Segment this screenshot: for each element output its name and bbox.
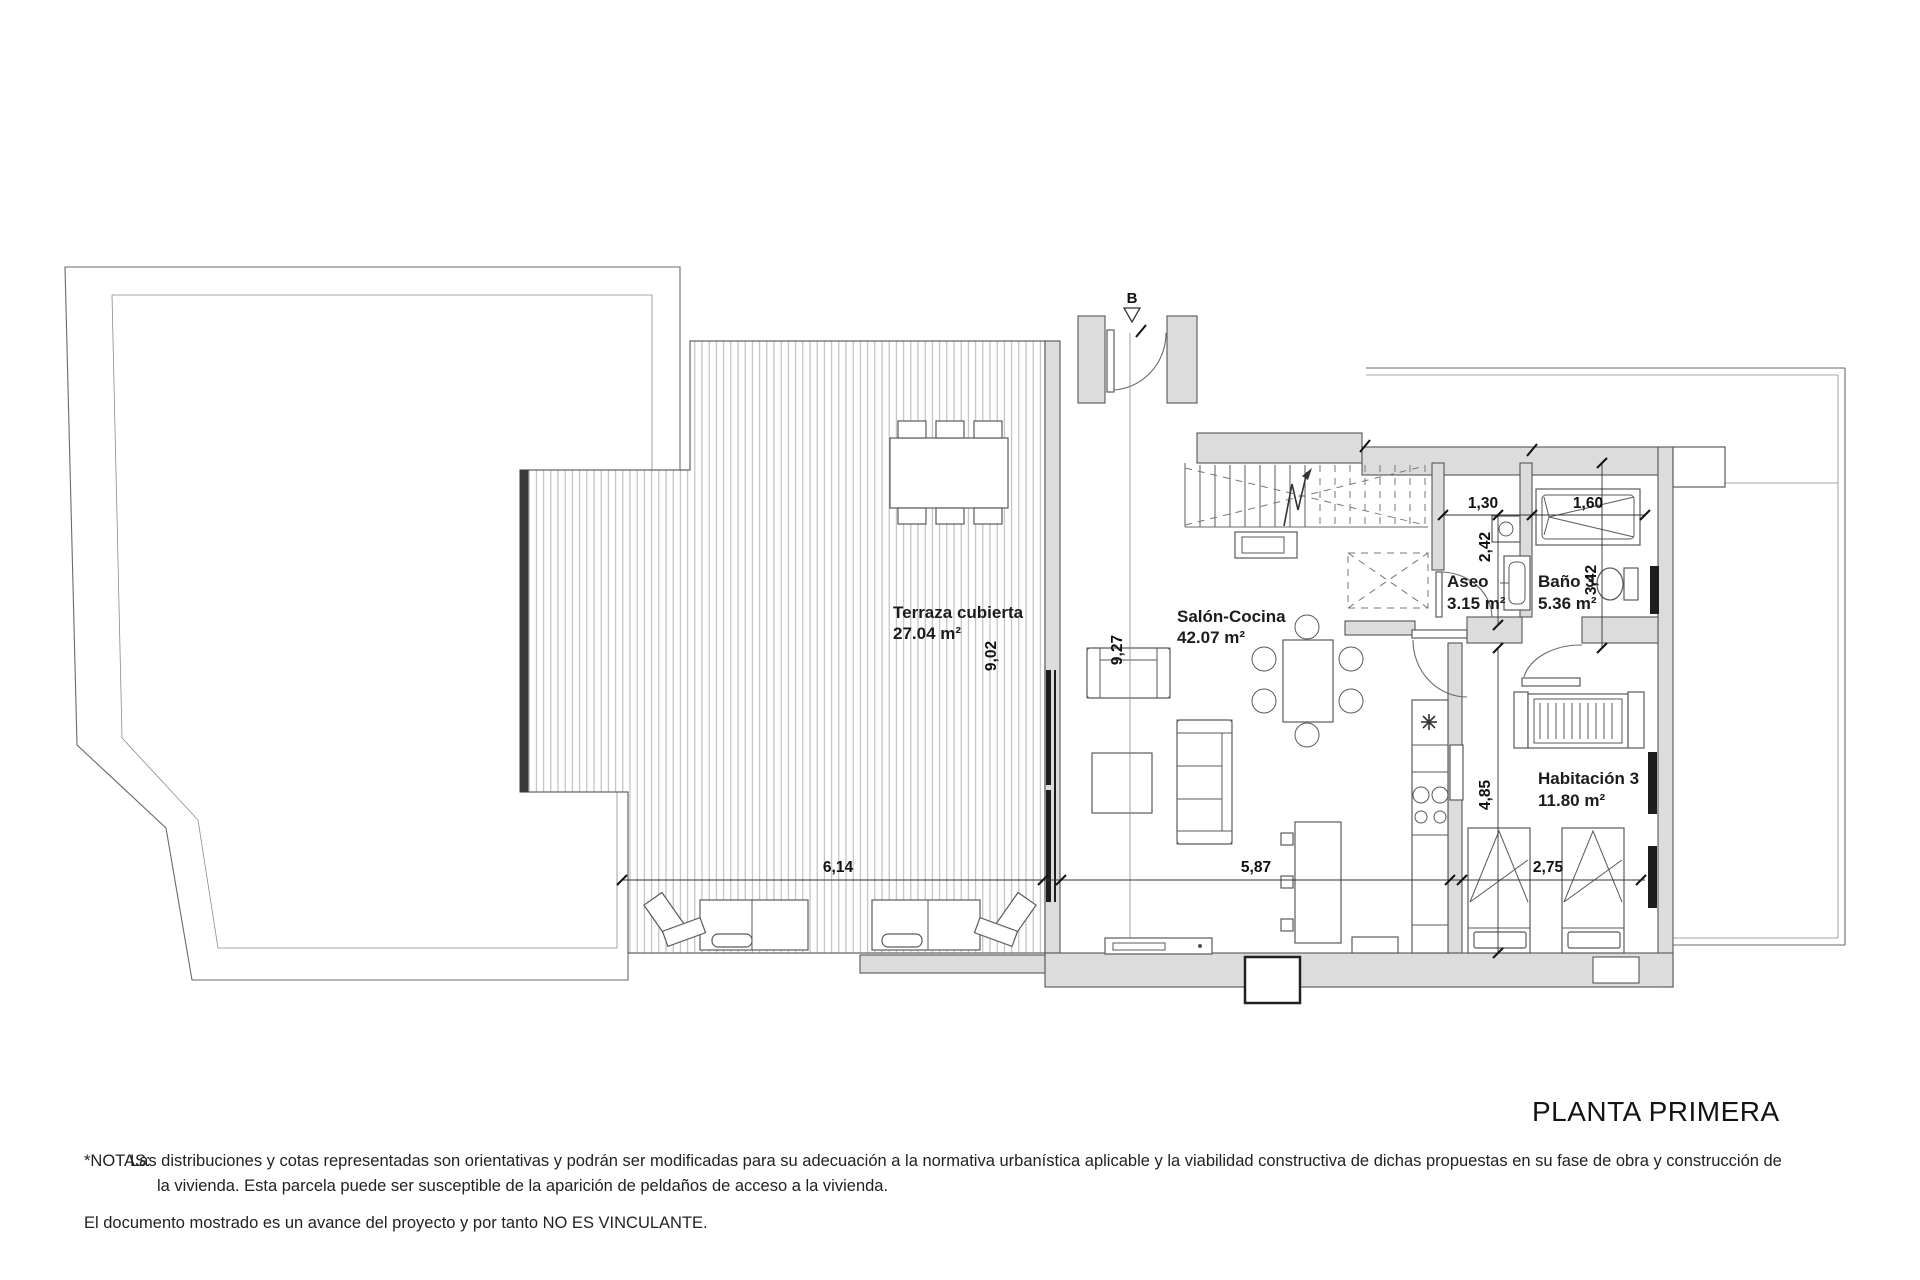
room-aseo-area: 3.15 m² bbox=[1447, 594, 1506, 613]
room-aseo-name: Aseo bbox=[1447, 572, 1489, 591]
floorplan-page: B 6,14 5,87 2,75 1,30 bbox=[0, 0, 1920, 1280]
wardrobe bbox=[1514, 692, 1644, 748]
sun-lounger-right bbox=[872, 892, 1036, 950]
dim-habitacion-height: 4,85 bbox=[1477, 780, 1494, 811]
notes-line2: la vivienda. Esta parcela puede ser susc… bbox=[157, 1177, 888, 1196]
room-habitacion-area: 11.80 m² bbox=[1538, 791, 1605, 810]
loveseat bbox=[1087, 648, 1170, 698]
room-terraza-name: Terraza cubierta bbox=[893, 603, 1024, 622]
terrace-area bbox=[520, 341, 1045, 973]
section-marker-label: B bbox=[1127, 290, 1138, 307]
room-salon-name: Salón-Cocina bbox=[1177, 607, 1286, 626]
service-box bbox=[1245, 957, 1300, 1003]
terrace-table bbox=[890, 421, 1008, 524]
terrace-bottom-wall bbox=[860, 955, 1045, 973]
bano-window bbox=[1650, 566, 1659, 614]
dim-terraza-width: 6,14 bbox=[823, 859, 854, 876]
window-box bbox=[1673, 447, 1725, 487]
toilet-icon bbox=[1597, 568, 1638, 600]
notes-disclaimer: El documento mostrado es un avance del p… bbox=[84, 1214, 708, 1233]
sofa bbox=[1177, 720, 1232, 844]
kitchen-island bbox=[1281, 822, 1341, 943]
tv-unit bbox=[1105, 938, 1212, 954]
room-terraza-area: 27.04 m² bbox=[893, 624, 961, 643]
cabinet bbox=[1352, 937, 1398, 953]
terrace-left-wall bbox=[520, 470, 528, 792]
dim-aseo-width: 1,30 bbox=[1468, 495, 1498, 512]
room-habitacion-name: Habitación 3 bbox=[1538, 769, 1639, 788]
sink-icon bbox=[1421, 714, 1437, 730]
room-bano-name: Baño 3 bbox=[1538, 572, 1595, 591]
bed-2 bbox=[1562, 828, 1624, 953]
dim-salon-width: 5,87 bbox=[1241, 859, 1271, 876]
page-title: PLANTA PRIMERA bbox=[1532, 1096, 1780, 1128]
entry-pillar-left bbox=[1078, 316, 1105, 403]
building bbox=[1045, 312, 1673, 1003]
notes-line1: Las distribuciones y cotas representadas… bbox=[130, 1152, 1782, 1171]
dim-salon-section: 9,27 bbox=[1109, 635, 1126, 665]
bed-1 bbox=[1468, 828, 1530, 953]
aseo-fixtures bbox=[1492, 516, 1520, 542]
dim-habitacion-width: 2,75 bbox=[1533, 859, 1564, 876]
floorplan-drawing: B 6,14 5,87 2,75 1,30 bbox=[0, 0, 1920, 1280]
service-box-small bbox=[1593, 957, 1639, 983]
room-bano-area: 5.36 m² bbox=[1538, 594, 1597, 613]
coffee-table bbox=[1092, 753, 1152, 813]
room-salon-area: 42.07 m² bbox=[1177, 628, 1245, 647]
entry-pillar-right bbox=[1167, 316, 1197, 403]
dim-terraza-height: 9,02 bbox=[983, 641, 1000, 671]
sun-lounger-left bbox=[644, 892, 808, 950]
dim-aseo-height: 2,42 bbox=[1477, 532, 1494, 562]
dim-bano-width: 1,60 bbox=[1573, 495, 1603, 512]
